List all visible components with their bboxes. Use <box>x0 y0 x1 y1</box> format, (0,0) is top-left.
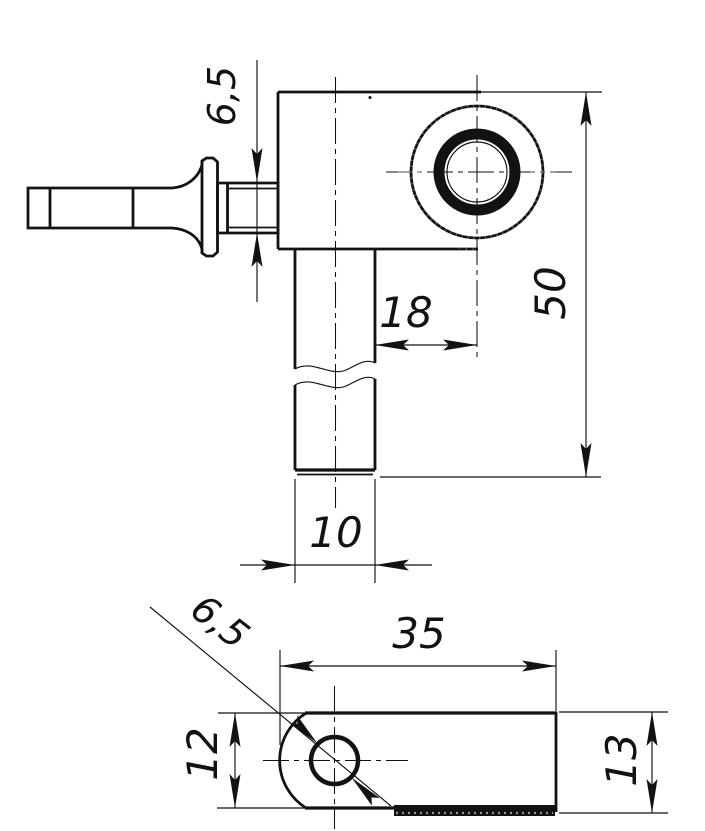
handle-outline <box>28 158 218 256</box>
dim-label-shaft-diameter: 10 <box>309 508 362 557</box>
dim-label-overall-height: 50 <box>526 266 575 319</box>
technical-drawing: 6,5 18 50 10 <box>0 0 705 831</box>
dim-plate-height: 13 <box>559 712 668 813</box>
dim-label-hole-diameter: 6,5 <box>183 586 258 658</box>
arrowhead <box>289 715 321 747</box>
handle <box>28 158 218 256</box>
front-view: 6,5 18 50 10 <box>28 60 602 583</box>
clamp-body-block <box>278 92 481 249</box>
dim-label-boss-offset: 18 <box>379 288 432 337</box>
clamp-plate <box>280 712 556 814</box>
dim-overall-height: 50 <box>380 92 602 477</box>
dim-boss-offset: 18 <box>375 288 477 351</box>
dim-stub-diameter: 6,5 <box>200 60 263 302</box>
dim-label-plate-length: 35 <box>392 609 445 658</box>
arrowhead <box>348 774 380 806</box>
threaded-stub <box>218 183 279 233</box>
drawing-sheet: 6,5 18 50 10 <box>0 0 705 831</box>
dim-label-plate-height: 13 <box>597 733 646 786</box>
dim-label-plate-width: 12 <box>178 727 227 780</box>
surface-dot-mark <box>369 96 372 99</box>
dim-label-stub-diameter: 6,5 <box>200 66 244 126</box>
bottom-view: 6,5 35 12 13 <box>150 586 668 829</box>
dim-plate-length: 35 <box>280 609 556 745</box>
